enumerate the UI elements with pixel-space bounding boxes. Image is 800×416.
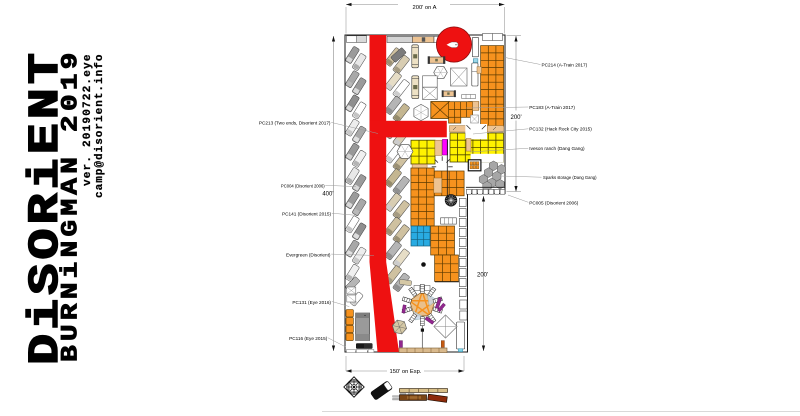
svg-text:PC141 (Disorient 2015): PC141 (Disorient 2015) bbox=[282, 212, 331, 217]
svg-text:PC004 (Disorient 2006): PC004 (Disorient 2006) bbox=[281, 184, 325, 189]
svg-text:Evergreen (Disorient): Evergreen (Disorient) bbox=[286, 253, 331, 258]
svg-text:Sparks storage (Dang Gang): Sparks storage (Dang Gang) bbox=[543, 175, 597, 180]
svg-text:200': 200' bbox=[511, 115, 522, 121]
svg-text:150' on Esp.: 150' on Esp. bbox=[389, 369, 421, 375]
svg-text:PC116 (Eye 2015): PC116 (Eye 2015) bbox=[289, 336, 328, 341]
svg-text:Iveson ranch (Dang Gang): Iveson ranch (Dang Gang) bbox=[529, 146, 585, 151]
svg-text:200': 200' bbox=[477, 273, 488, 279]
svg-text:PC005 (Disorient 2006): PC005 (Disorient 2006) bbox=[529, 200, 578, 205]
svg-text:PC131 (Eye 2016): PC131 (Eye 2016) bbox=[292, 300, 331, 305]
svg-text:200' on A: 200' on A bbox=[413, 5, 437, 11]
svg-text:400': 400' bbox=[322, 191, 333, 197]
svg-text:PC214 (A-Train 2017): PC214 (A-Train 2017) bbox=[542, 63, 588, 68]
svg-text:PC183 (A-Train 2017): PC183 (A-Train 2017) bbox=[529, 105, 575, 110]
svg-text:PC213 (Two ends, Disorient 201: PC213 (Two ends, Disorient 2017) bbox=[259, 121, 331, 126]
svg-text:PC132 (Hack Rock City 2015): PC132 (Hack Rock City 2015) bbox=[529, 127, 592, 132]
